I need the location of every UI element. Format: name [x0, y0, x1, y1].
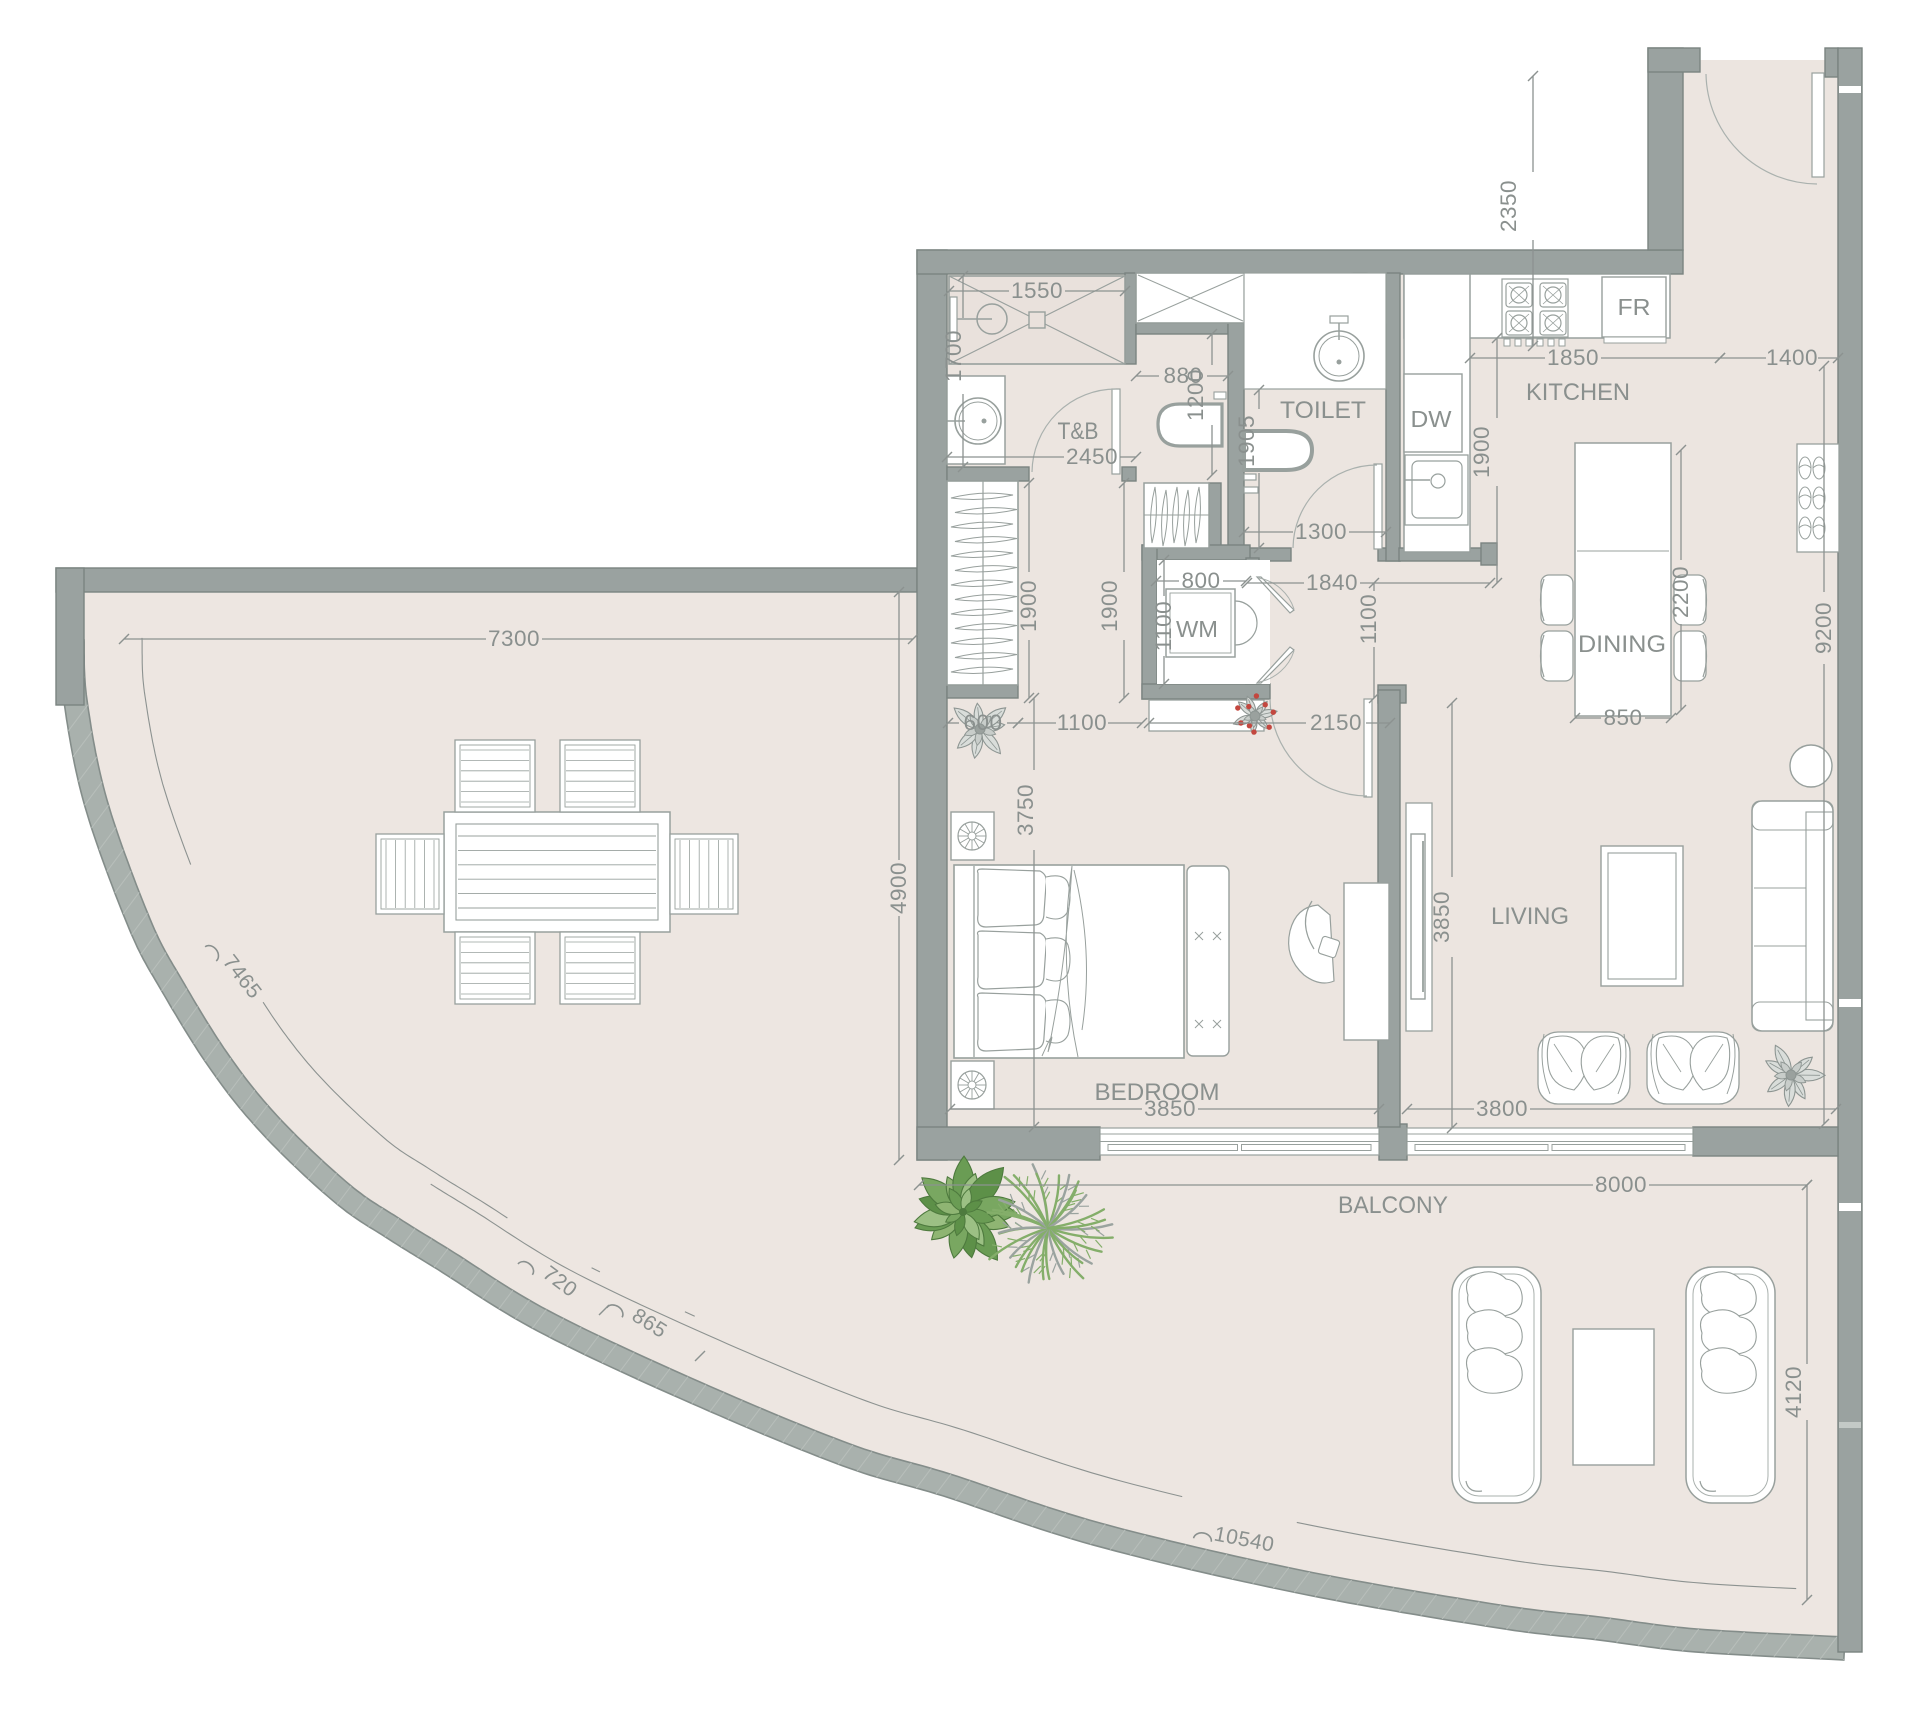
- svg-text:LIVING: LIVING: [1491, 903, 1569, 930]
- svg-text:KITCHEN: KITCHEN: [1526, 379, 1630, 406]
- svg-text:DINING: DINING: [1578, 631, 1666, 658]
- svg-text:1200: 1200: [1183, 369, 1208, 421]
- svg-text:T&B: T&B: [1058, 418, 1099, 445]
- svg-text:2150: 2150: [1310, 710, 1362, 735]
- svg-text:DW: DW: [1411, 406, 1452, 432]
- svg-text:3800: 3800: [1476, 1096, 1528, 1121]
- svg-text:1100: 1100: [1151, 601, 1176, 651]
- svg-text:FR: FR: [1618, 294, 1651, 320]
- svg-text:8000: 8000: [1595, 1172, 1647, 1197]
- svg-text:1840: 1840: [1306, 570, 1358, 595]
- svg-text:2450: 2450: [1066, 444, 1118, 469]
- svg-text:9200: 9200: [1811, 602, 1836, 654]
- svg-text:1900: 1900: [1469, 426, 1494, 478]
- svg-text:2350: 2350: [1496, 180, 1521, 232]
- svg-text:3750: 3750: [1013, 784, 1038, 836]
- svg-text:7300: 7300: [488, 626, 540, 651]
- svg-text:WM: WM: [1176, 616, 1218, 642]
- svg-text:BEDROOM: BEDROOM: [1095, 1079, 1220, 1106]
- svg-text:3850: 3850: [1429, 891, 1454, 943]
- svg-text:TOILET: TOILET: [1280, 397, 1366, 424]
- svg-text:850: 850: [1603, 705, 1642, 730]
- svg-text:4120: 4120: [1781, 1366, 1806, 1418]
- svg-text:1900: 1900: [1016, 580, 1041, 632]
- svg-text:1550: 1550: [1011, 278, 1063, 303]
- svg-text:1400: 1400: [1766, 345, 1818, 370]
- svg-text:1100: 1100: [1057, 710, 1107, 735]
- svg-text:1850: 1850: [1547, 345, 1599, 370]
- svg-text:BALCONY: BALCONY: [1338, 1192, 1448, 1219]
- svg-text:1700: 1700: [941, 330, 966, 382]
- svg-text:1100: 1100: [1356, 594, 1381, 644]
- svg-text:1900: 1900: [1097, 580, 1122, 632]
- svg-text:1300: 1300: [1295, 519, 1347, 544]
- svg-text:2200: 2200: [1668, 566, 1693, 618]
- svg-text:600: 600: [963, 710, 1002, 735]
- svg-text:800: 800: [1181, 568, 1220, 593]
- svg-text:1905: 1905: [1234, 415, 1259, 467]
- svg-text:4900: 4900: [886, 862, 911, 914]
